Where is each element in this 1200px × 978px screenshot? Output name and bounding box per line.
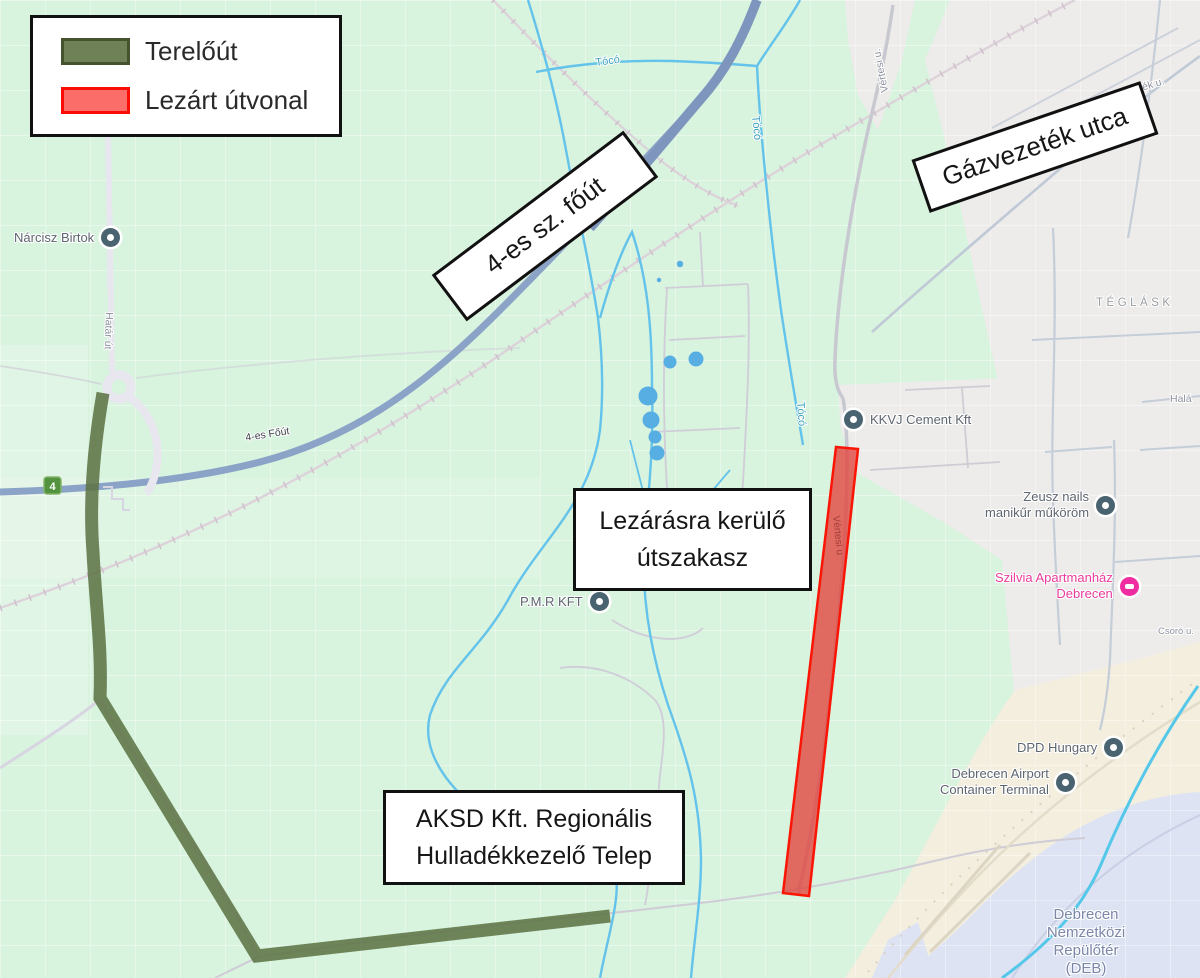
poi-marker-icon xyxy=(844,410,863,429)
poi-szilvia-line1: Szilvia Apartmanház xyxy=(995,570,1113,586)
poi-pmr-label: P.M.R KFT xyxy=(520,594,583,609)
street-label-halap: Halá xyxy=(1170,393,1192,405)
poi-container-terminal: Debrecen Airport Container Terminal xyxy=(940,766,1075,799)
legend: Terelőút Lezárt útvonal xyxy=(30,15,342,137)
poi-marker-icon xyxy=(101,228,120,247)
poi-szilvia-line2: Debrecen xyxy=(995,586,1113,602)
annotation-aksd-line2: Hulladékkezelő Telep xyxy=(416,838,652,874)
closed-color-swatch xyxy=(61,87,130,114)
detour-color-swatch xyxy=(61,38,130,65)
airport-line1: Debrecen xyxy=(1011,906,1161,924)
poi-marker-icon xyxy=(1096,496,1115,515)
poi-marker-icon xyxy=(590,592,609,611)
legend-closed-label: Lezárt útvonal xyxy=(145,85,308,116)
annotation-closed-line1: Lezárásra kerülő xyxy=(599,503,785,539)
district-label-teglaskert: TÉGLÁSK xyxy=(1096,296,1174,309)
hotel-marker-icon xyxy=(1120,577,1139,596)
poi-dpd-label: DPD Hungary xyxy=(1017,740,1097,755)
poi-kkvj-cement: KKVJ Cement Kft xyxy=(844,410,971,429)
poi-zeusz-nails: Zeusz nails manikűr műköröm xyxy=(985,489,1115,522)
poi-marker-icon xyxy=(1104,738,1123,757)
poi-terminal-line1: Debrecen Airport xyxy=(940,766,1049,782)
airport-line4: (DEB) xyxy=(1011,960,1161,978)
poi-kkvj-label: KKVJ Cement Kft xyxy=(870,412,971,427)
annotation-closed-line2: útszakasz xyxy=(637,540,748,576)
poi-narcisz-label: Nárcisz Birtok xyxy=(14,230,94,245)
annotation-aksd-line1: AKSD Kft. Regionális xyxy=(416,801,652,837)
legend-item-detour: Terelőút xyxy=(61,36,339,67)
annotation-aksd-box: AKSD Kft. Regionális Hulladékkezelő Tele… xyxy=(383,790,685,885)
poi-marker-icon xyxy=(1056,773,1075,792)
legend-item-closed: Lezárt útvonal xyxy=(61,85,339,116)
poi-terminal-label: Debrecen Airport Container Terminal xyxy=(940,766,1049,799)
poi-terminal-line2: Container Terminal xyxy=(940,782,1049,798)
poi-szilvia-label: Szilvia Apartmanház Debrecen xyxy=(995,570,1113,603)
poi-debrecen-airport: Debrecen Nemzetközi Repülőtér (DEB) xyxy=(1011,906,1161,978)
poi-pmr-kft: P.M.R KFT xyxy=(520,592,609,611)
water-label-toco-3: Tócó xyxy=(794,401,808,426)
airport-line2: Nemzetközi xyxy=(1011,924,1161,942)
poi-zeusz-line1: Zeusz nails xyxy=(985,489,1089,505)
legend-detour-label: Terelőút xyxy=(145,36,238,67)
water-label-toco-2: Tócó xyxy=(749,115,763,141)
street-label-cso: Csoró u. xyxy=(1158,626,1194,637)
poi-dpd-hungary: DPD Hungary xyxy=(1017,738,1123,757)
annotation-closed-section-box: Lezárásra kerülő útszakasz xyxy=(573,488,812,591)
street-label-hatar-ut: Határ út xyxy=(102,312,115,350)
poi-zeusz-line2: manikűr műköröm xyxy=(985,505,1089,521)
svg-text:4: 4 xyxy=(49,481,56,493)
airport-line3: Repülőtér xyxy=(1011,942,1161,960)
road-closure-map: Tócó Tócó Tócó Határ út 4-es Főút Vértes… xyxy=(0,0,1200,978)
route-4-shield: 4 xyxy=(44,477,61,494)
poi-szilvia-apartman: Szilvia Apartmanház Debrecen xyxy=(995,570,1139,603)
poi-zeusz-label: Zeusz nails manikűr műköröm xyxy=(985,489,1089,522)
poi-narcisz-birtok: Nárcisz Birtok xyxy=(14,228,120,247)
